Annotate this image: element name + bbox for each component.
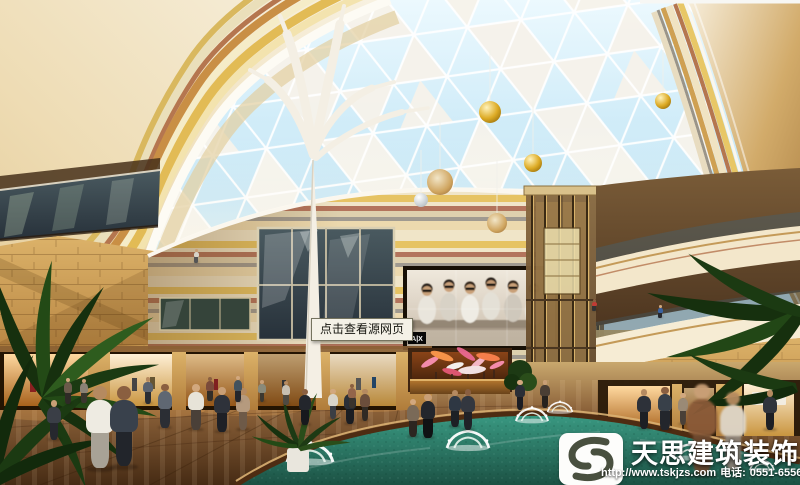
elevator-cab [544,228,580,294]
phone-number-text: 0551-65568226 [750,467,800,479]
source-tooltip[interactable]: 点击查看源网页 [311,318,413,341]
mall-atrium-rendering: A|X [0,0,800,485]
watermark-contact-line: http://www.tskjzs.com电话:0551-65568226 [601,464,800,480]
website-url-text: http://www.tskjzs.com [601,467,716,479]
rendering-scene: A|X [0,0,800,485]
phone-label-text: 电话: [720,467,746,479]
drum-window-band [160,298,250,330]
